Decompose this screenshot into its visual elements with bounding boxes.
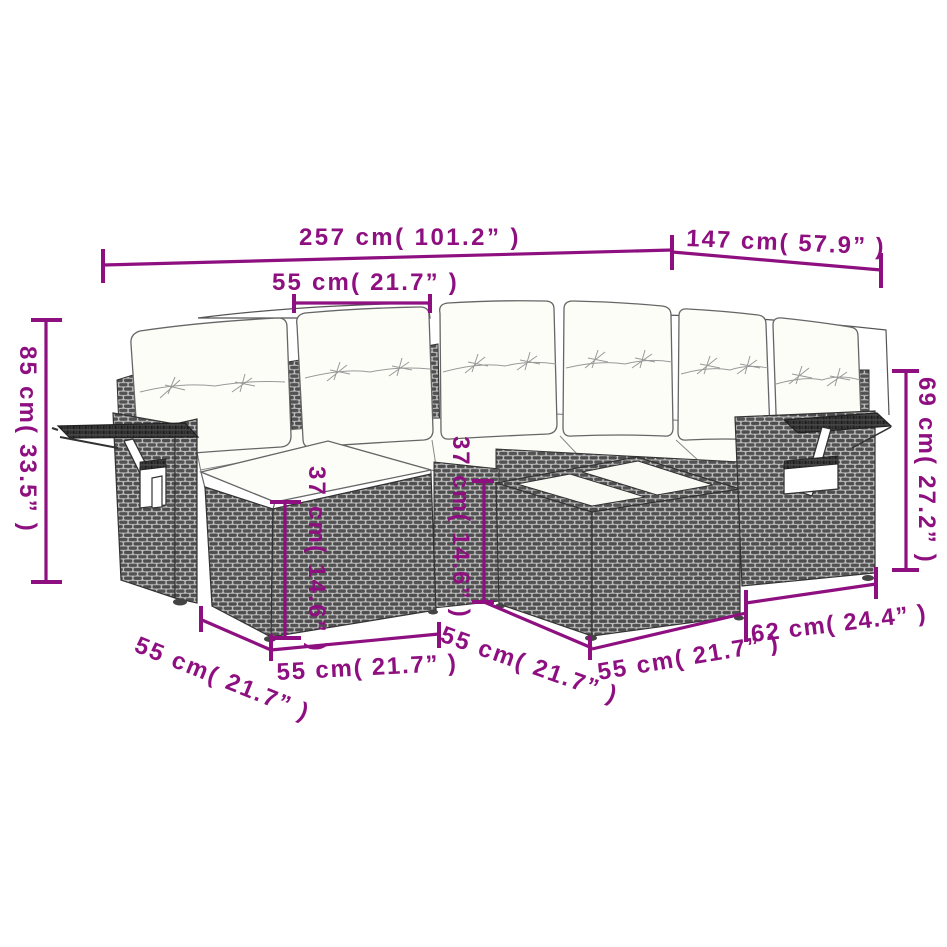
svg-text:37 cm( 14.6” ): 37 cm( 14.6” ) [447, 436, 474, 619]
svg-text:257 cm( 101.2” ): 257 cm( 101.2” ) [299, 224, 521, 251]
svg-text:37 cm( 14.6” ): 37 cm( 14.6” ) [303, 466, 330, 653]
svg-text:85 cm( 33.5” ): 85 cm( 33.5” ) [14, 346, 41, 533]
svg-text:69 cm( 27.2” ): 69 cm( 27.2” ) [913, 377, 940, 564]
svg-text:55 cm( 21.7” ): 55 cm( 21.7” ) [272, 269, 459, 296]
